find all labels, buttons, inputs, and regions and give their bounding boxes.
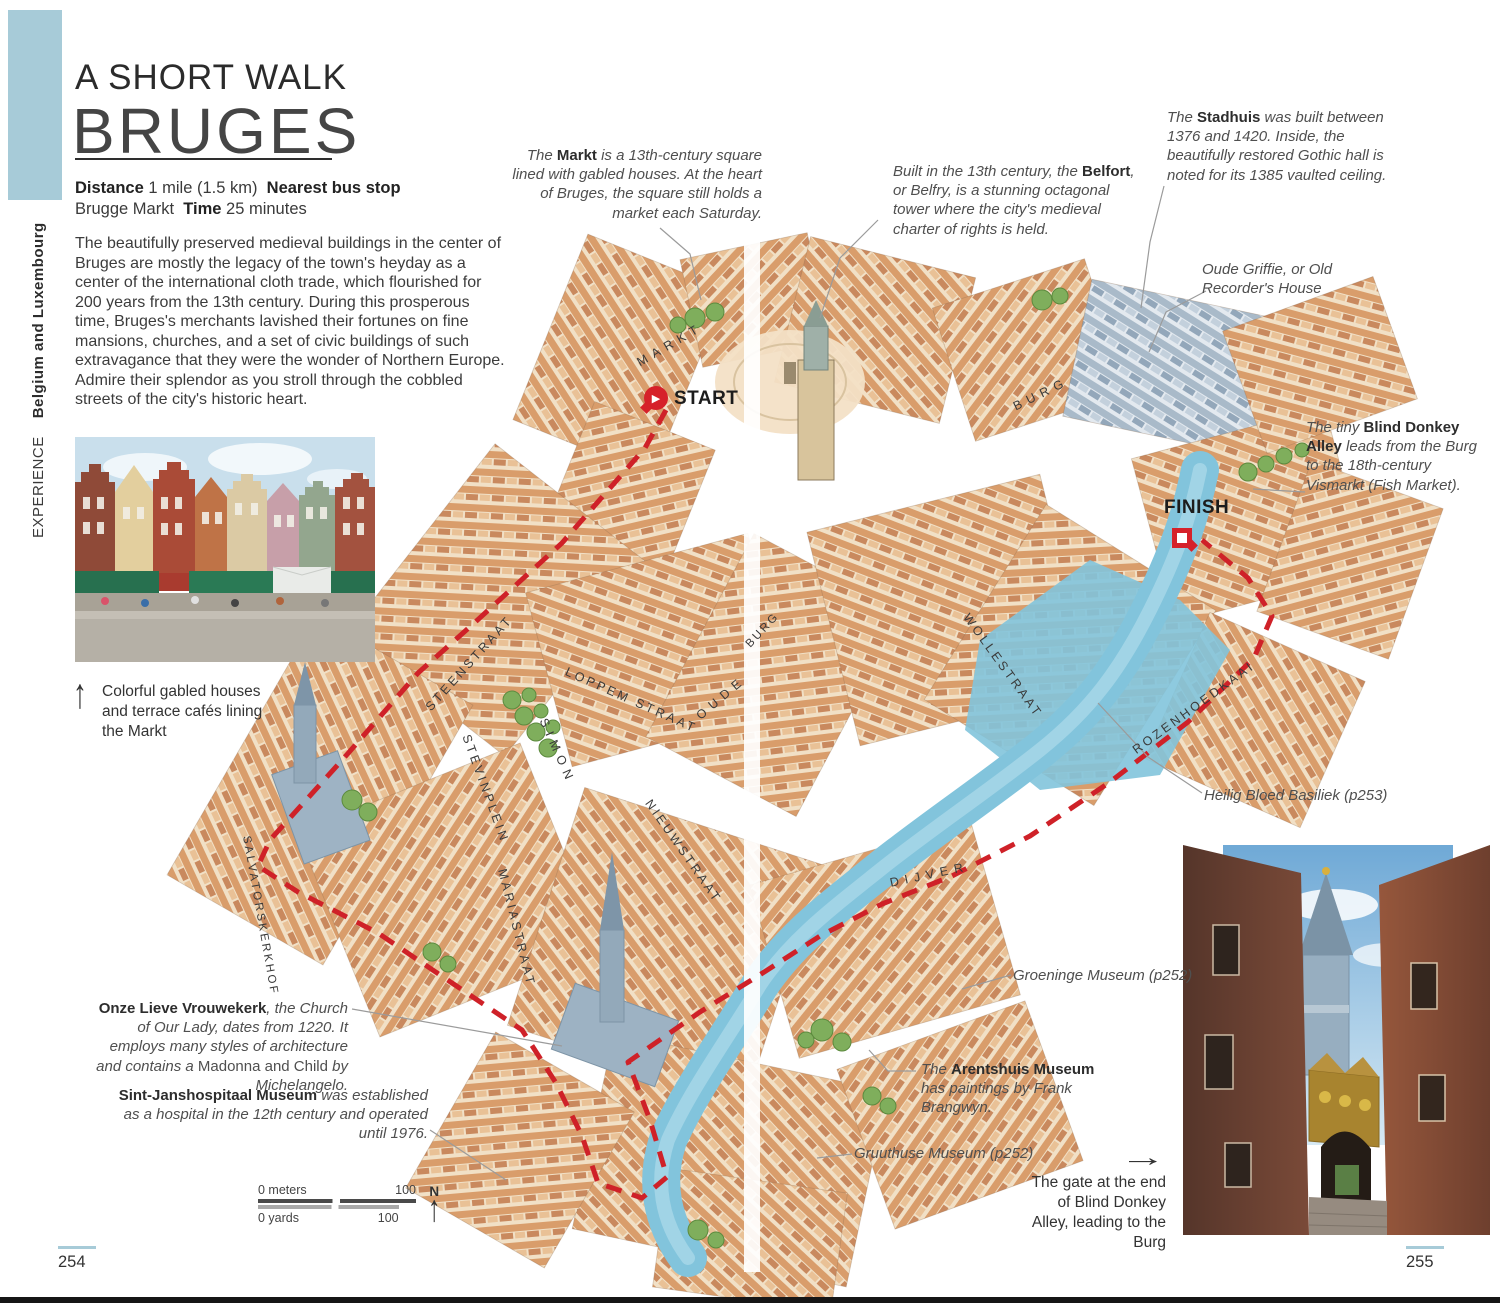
street-label-markt: MARKT [635,320,706,369]
page-number-right-value: 255 [1406,1253,1434,1271]
book-gutter [744,232,760,1272]
street-label-nieuwstraat: NIEUWSTRAAT [642,797,724,906]
street-label-rozenhoedkaai: ROZENHOEDKAAI [1130,659,1257,757]
start-label: START [674,388,738,410]
section-color-tab [8,10,62,200]
scale-meters-max: 100 [395,1183,416,1197]
scale-meters-label: 0 meters [258,1183,307,1197]
street-label-simon: SIMON [537,716,579,787]
gate-photo-illustration [1183,845,1490,1235]
page-number-rule-right [1406,1246,1444,1249]
gate-photo [1183,845,1490,1235]
annotation-heilig-bloed-basiliek: Heilig Bloed Basiliek (p253) [1204,786,1434,805]
street-label-oude: OUDE [694,673,749,722]
annotation-belfort: Built in the 13th century, the Belfort, … [893,162,1138,239]
page-number-right: 255 [1406,1246,1444,1272]
street-label-stevinplein: STEVINPLEIN [459,733,511,845]
street-label-steenstraat: STEENSTRAAT [423,613,516,714]
annotation-stadhuis: The Stadhuis was built between 1376 and … [1167,108,1402,185]
annotation-onze-lieve-vrouwekerk: Onze Lieve Vrouwekerk, the Church of Our… [86,999,348,1095]
annotation-blind-donkey-alley: The tiny Blind Donkey Alley leads from t… [1306,418,1486,495]
sidebar-region-label: Belgium and Luxembourg [30,222,47,418]
street-label-mariastraat: MARIASTRAAT [495,867,538,988]
distance-label: Distance [75,179,144,197]
page-bottom-edge [0,1297,1500,1303]
gate-photo-caption-block: → The gate at the end of Blind Donkey Al… [1018,1142,1166,1254]
street-label-dijver: DIJVER [889,859,971,889]
walking-route [258,410,1272,1198]
finish-label: FINISH [1164,497,1229,519]
scale-bar-meters [258,1199,416,1203]
page-title: BRUGES [72,94,360,168]
time-label: Time [183,200,221,218]
page-number-left-value: 254 [58,1253,86,1271]
right-arrow-icon: → [1018,1142,1166,1173]
street-label-loppem-straat: LOPPEM STRAAT [563,665,699,736]
markt-photo-caption-arrow: ↑ [73,678,87,710]
street-label-burg: BURG [1011,374,1071,413]
north-indicator: N ↑ [428,1184,441,1222]
time-value: 25 minutes [226,200,307,218]
start-pin-icon: ▶ [644,386,668,410]
street-label-wollestraat: WOLLESTRAAT [960,611,1045,720]
markt-photo-caption: Colorful gabled houses and terrace cafés… [102,682,270,742]
distance-value: 1 mile (1.5 km) [148,179,257,197]
north-arrow-icon: ↑ [428,1194,441,1224]
gate-photo-caption: The gate at the end of Blind Donkey Alle… [1018,1173,1166,1254]
scale-yards-label: 0 yards [258,1211,299,1225]
page-number-rule-left [58,1246,96,1249]
markt-monument [784,362,796,384]
street-label-burg-2: BURG [744,610,782,650]
annotation-sint-janshospitaal: Sint-Janshospitaal Museum was establishe… [116,1086,428,1144]
annotation-markt: The Markt is a 13th-century square lined… [500,146,762,223]
annotation-gruuthuse-museum: Gruuthuse Museum (p252) [854,1144,1039,1163]
sidebar-vertical-label: EXPERIENCEBelgium and Luxembourg [30,222,47,538]
trees [342,288,1309,1248]
annotation-arentshuis-museum: The Arentshuis Museum has paintings by F… [921,1060,1106,1118]
up-arrow-icon: ↑ [73,670,87,718]
page-number-left: 254 [58,1246,96,1272]
finish-pin-icon [1172,528,1192,548]
street-label-salvatorskerkhof: SALVATORSKERKHOF [240,835,280,996]
markt-photo [75,437,375,662]
markt-photo-illustration [75,437,375,662]
annotation-groeninge-museum: Groeninge Museum (p252) [1013,966,1203,985]
intro-paragraph: The beautifully preserved medieval build… [75,234,507,410]
title-rule [75,158,332,160]
bus-value: Brugge Markt [75,200,174,218]
walk-info: Distance 1 mile (1.5 km) Nearest bus sto… [75,178,420,221]
page-kicker: A SHORT WALK [75,58,347,98]
sidebar-experience-label: EXPERIENCE [30,436,47,538]
markt-square [715,330,865,434]
annotation-oude-griffie: Oude Griffie, or Old Recorder's House [1202,260,1392,298]
scale-bar-yards [258,1205,399,1209]
scale-yards-max: 100 [378,1211,399,1225]
map-scale-bar: 0 meters 100 0 yards 100 [258,1183,416,1225]
bus-label: Nearest bus stop [267,179,401,197]
landmarks [272,300,834,1087]
